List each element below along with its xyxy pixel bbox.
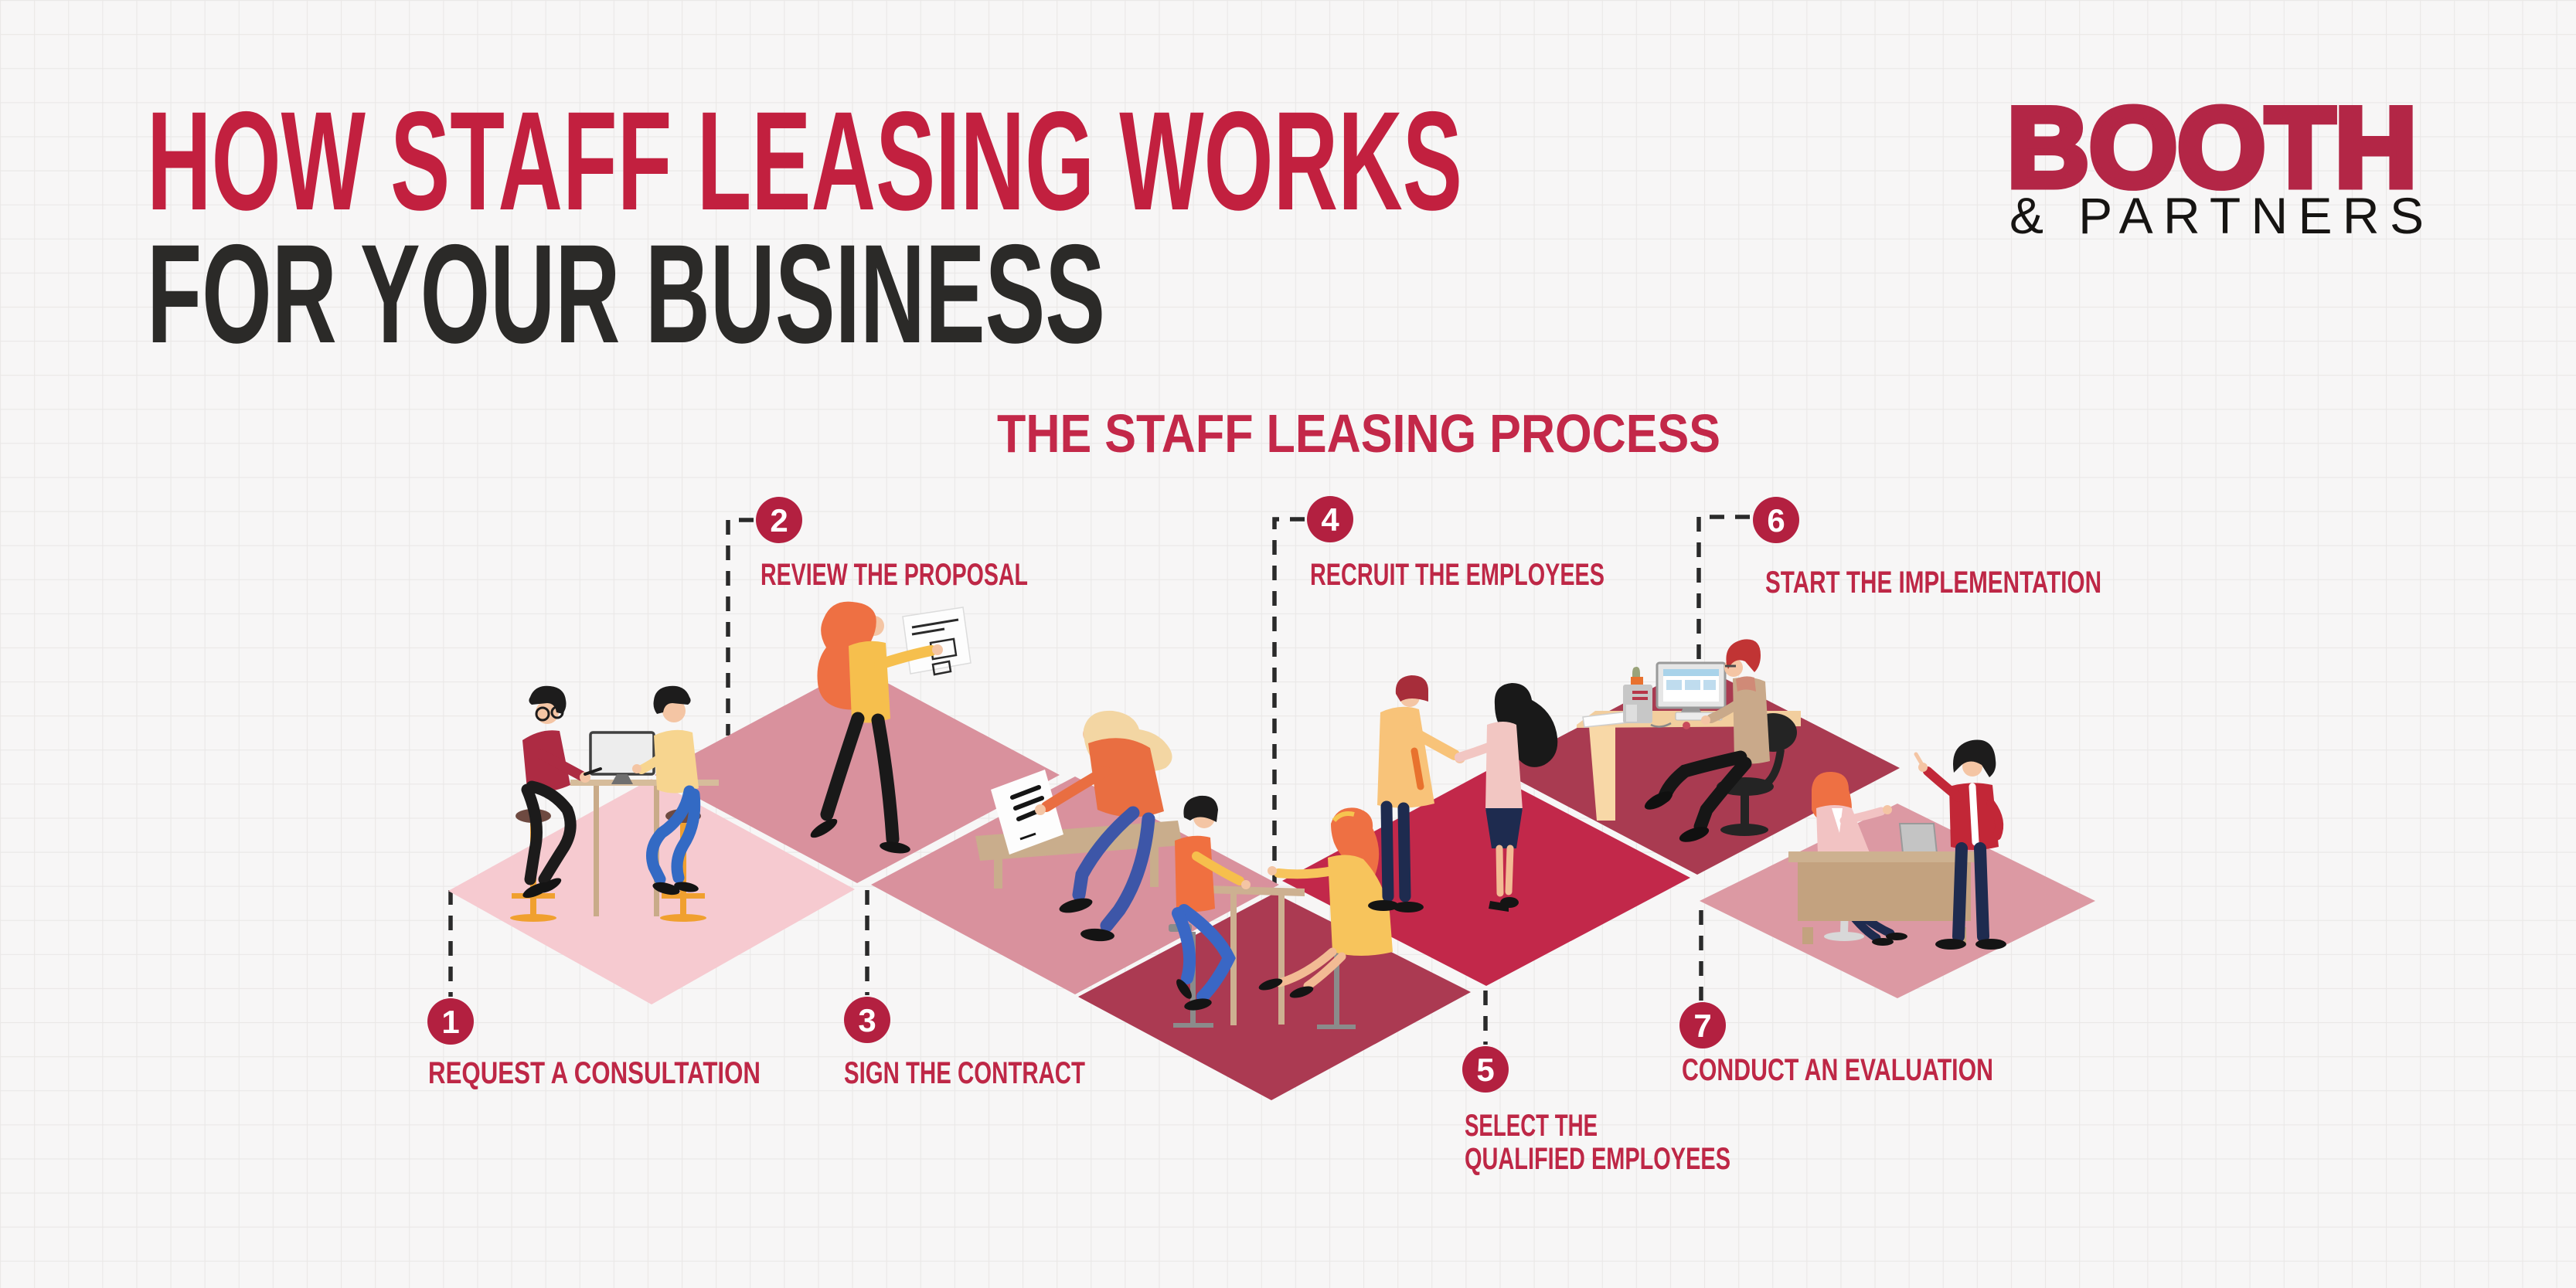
svg-text:RECRUIT THE EMPLOYEES: RECRUIT THE EMPLOYEES [1310, 558, 1604, 592]
svg-text:SIGN THE CONTRACT: SIGN THE CONTRACT [844, 1056, 1085, 1090]
svg-text:FOR YOUR BUSINESS: FOR YOUR BUSINESS [147, 215, 1105, 372]
svg-text:5: 5 [1476, 1052, 1494, 1088]
svg-text:SELECT THE: SELECT THE [1465, 1109, 1598, 1143]
svg-text:QUALIFIED EMPLOYEES: QUALIFIED EMPLOYEES [1465, 1142, 1730, 1176]
svg-text:REVIEW THE PROPOSAL: REVIEW THE PROPOSAL [761, 558, 1028, 592]
svg-text:7: 7 [1693, 1008, 1711, 1044]
svg-text:THE STAFF LEASING PROCESS: THE STAFF LEASING PROCESS [997, 403, 1720, 464]
svg-text:6: 6 [1767, 502, 1785, 539]
svg-text:REQUEST A CONSULTATION: REQUEST A CONSULTATION [428, 1056, 761, 1090]
svg-text:4: 4 [1321, 501, 1339, 538]
svg-text:1: 1 [441, 1004, 459, 1040]
svg-text:START THE IMPLEMENTATION: START THE IMPLEMENTATION [1765, 566, 2101, 600]
svg-text:3: 3 [858, 1002, 876, 1038]
svg-text:CONDUCT AN EVALUATION: CONDUCT AN EVALUATION [1682, 1053, 1993, 1087]
svg-text:2: 2 [770, 502, 788, 539]
